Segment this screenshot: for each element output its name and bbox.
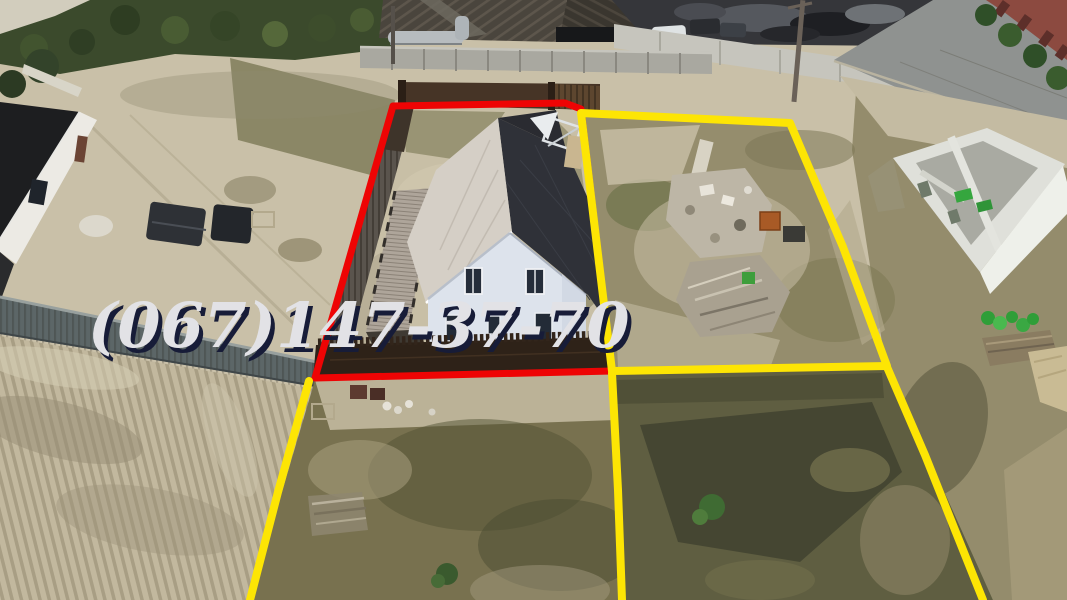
dark-car	[720, 23, 746, 38]
utility-pole	[391, 6, 395, 64]
green-object	[742, 272, 755, 284]
tarp-covered-pile	[210, 204, 254, 244]
tarp-covered-pile	[146, 201, 207, 246]
bush	[975, 4, 997, 26]
bush	[998, 23, 1022, 47]
brown-crate	[350, 385, 367, 399]
phone-watermark: (067)147-37-70	[88, 289, 630, 362]
wood-pile	[308, 492, 368, 536]
dark-doorway	[556, 27, 618, 42]
white-sacks	[79, 215, 113, 237]
dark-car	[690, 18, 721, 35]
dark-crate	[783, 226, 805, 242]
bush	[1023, 44, 1047, 68]
brown-crate	[370, 388, 385, 400]
bottom-left-plot	[250, 372, 642, 600]
aerial-photo-land-plots: (067)147-37-70 (067)147-37-70	[0, 0, 1067, 600]
photo-canvas: (067)147-37-70 (067)147-37-70	[0, 0, 1067, 600]
orange-crate	[760, 212, 780, 230]
